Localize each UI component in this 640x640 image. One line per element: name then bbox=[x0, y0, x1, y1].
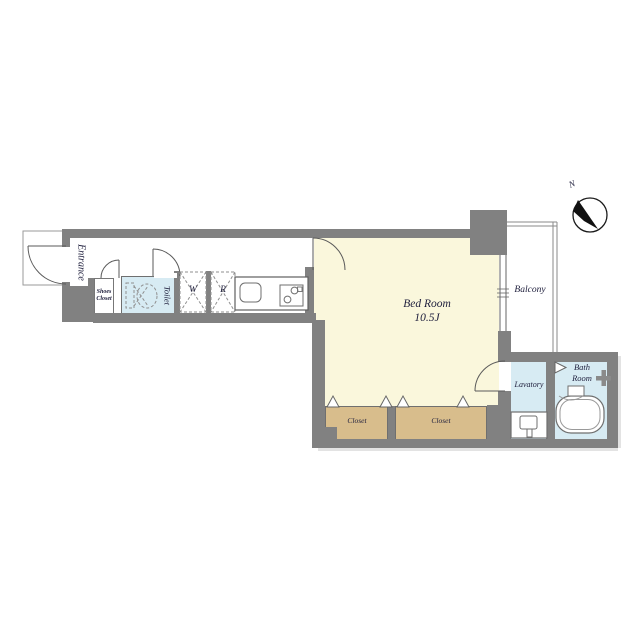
compass-icon bbox=[573, 198, 607, 232]
kitchen-counter bbox=[235, 277, 308, 310]
lavatory-label: Lavatory bbox=[509, 380, 549, 389]
plan-shadow-bottom bbox=[318, 448, 618, 451]
wall-closet-divider bbox=[388, 406, 395, 440]
wall-lavatory-left bbox=[498, 391, 511, 439]
entrance-door bbox=[28, 246, 66, 284]
wall-entrance-step bbox=[88, 278, 94, 288]
balcony-label: Balcony bbox=[495, 285, 565, 296]
wall-balcony-end-block bbox=[498, 331, 511, 353]
wall-right bbox=[607, 352, 618, 439]
wall-lavatory-bath-divider bbox=[546, 362, 555, 439]
fridge-label: R bbox=[210, 285, 236, 296]
wall-top bbox=[62, 229, 472, 238]
bath-room-label: BathRoom bbox=[559, 362, 605, 383]
entry-porch-outline bbox=[23, 231, 62, 285]
closet-left-label: Closet bbox=[326, 417, 388, 426]
wall-bottom bbox=[312, 439, 618, 448]
washer-label: W bbox=[180, 285, 206, 296]
floor-plan: Entrance ShoesCloset Toilet W R Bed Room… bbox=[0, 0, 640, 640]
wall-entrance-left-top bbox=[62, 238, 70, 247]
entrance-label: Entrance bbox=[74, 238, 87, 288]
wall-corridor-right bbox=[305, 267, 314, 322]
toilet-label: Toilet bbox=[161, 273, 172, 319]
lavatory-room bbox=[511, 362, 547, 440]
closet-right-label: Closet bbox=[396, 417, 486, 426]
shoes-closet-label: ShoesCloset bbox=[93, 289, 115, 303]
plan-shadow-right bbox=[618, 356, 621, 448]
wall-pillar bbox=[470, 210, 507, 255]
shoes-closet-door bbox=[101, 260, 119, 278]
wall-left-lower bbox=[312, 320, 325, 440]
wall-entrance-block bbox=[62, 286, 94, 322]
wall-lavatory-top bbox=[498, 352, 618, 362]
compass-north-label: N bbox=[563, 176, 582, 192]
bedroom-label: Bed Room10.5J bbox=[357, 297, 497, 325]
stove-icon bbox=[280, 285, 303, 306]
wall-corridor-bottom bbox=[93, 313, 316, 323]
wall-closet-notch bbox=[325, 427, 337, 440]
